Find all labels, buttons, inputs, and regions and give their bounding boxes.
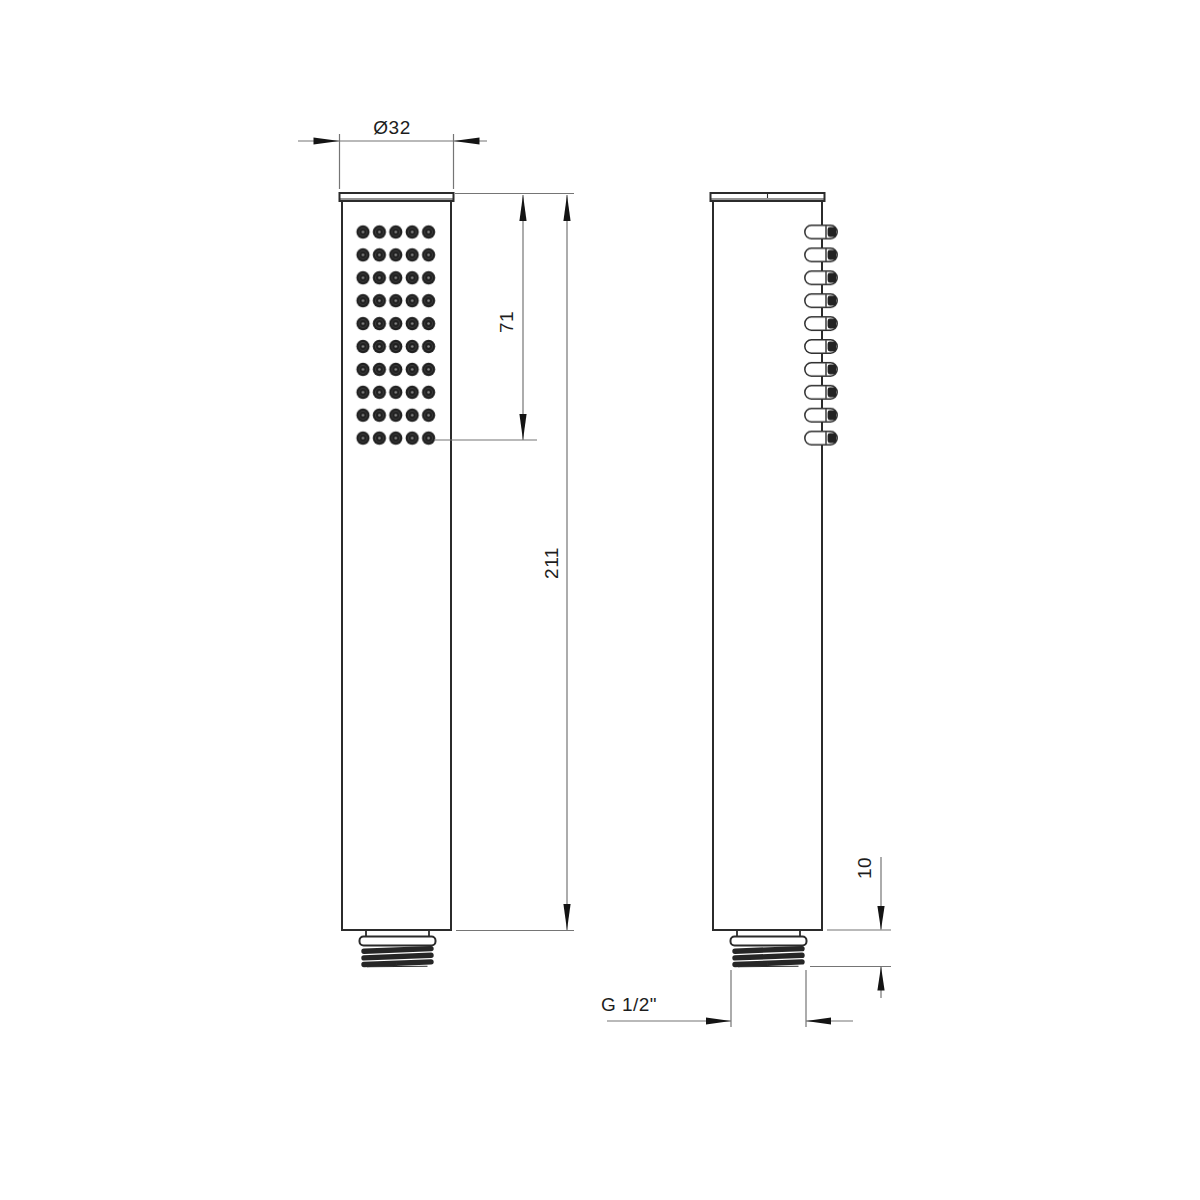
dim-total-length: 211	[456, 195, 574, 931]
spray-face-length-label: 71	[496, 311, 517, 333]
head-diameter-label: Ø32	[373, 117, 410, 138]
dim-head-diameter: Ø32	[298, 117, 487, 189]
thread-length-label: 10	[854, 857, 875, 879]
side-connector	[731, 931, 807, 967]
front-cap	[340, 193, 454, 201]
total-length-label: 211	[541, 547, 562, 579]
thread-size-label: G 1/2"	[601, 994, 657, 1015]
front-collar	[360, 937, 436, 946]
front-connector	[360, 931, 436, 967]
technical-drawing: Ø32 71 211 10 G 1/2"	[0, 0, 1200, 1200]
front-view	[340, 193, 454, 967]
side-nozzles	[804, 221, 838, 450]
side-view	[711, 193, 839, 967]
drawing-svg: Ø32 71 211 10 G 1/2"	[0, 0, 1200, 1200]
side-thread	[735, 949, 802, 967]
side-collar	[731, 937, 807, 946]
front-thread	[364, 949, 431, 967]
front-spray-face	[355, 221, 437, 450]
dim-thread-size: G 1/2"	[601, 970, 853, 1027]
